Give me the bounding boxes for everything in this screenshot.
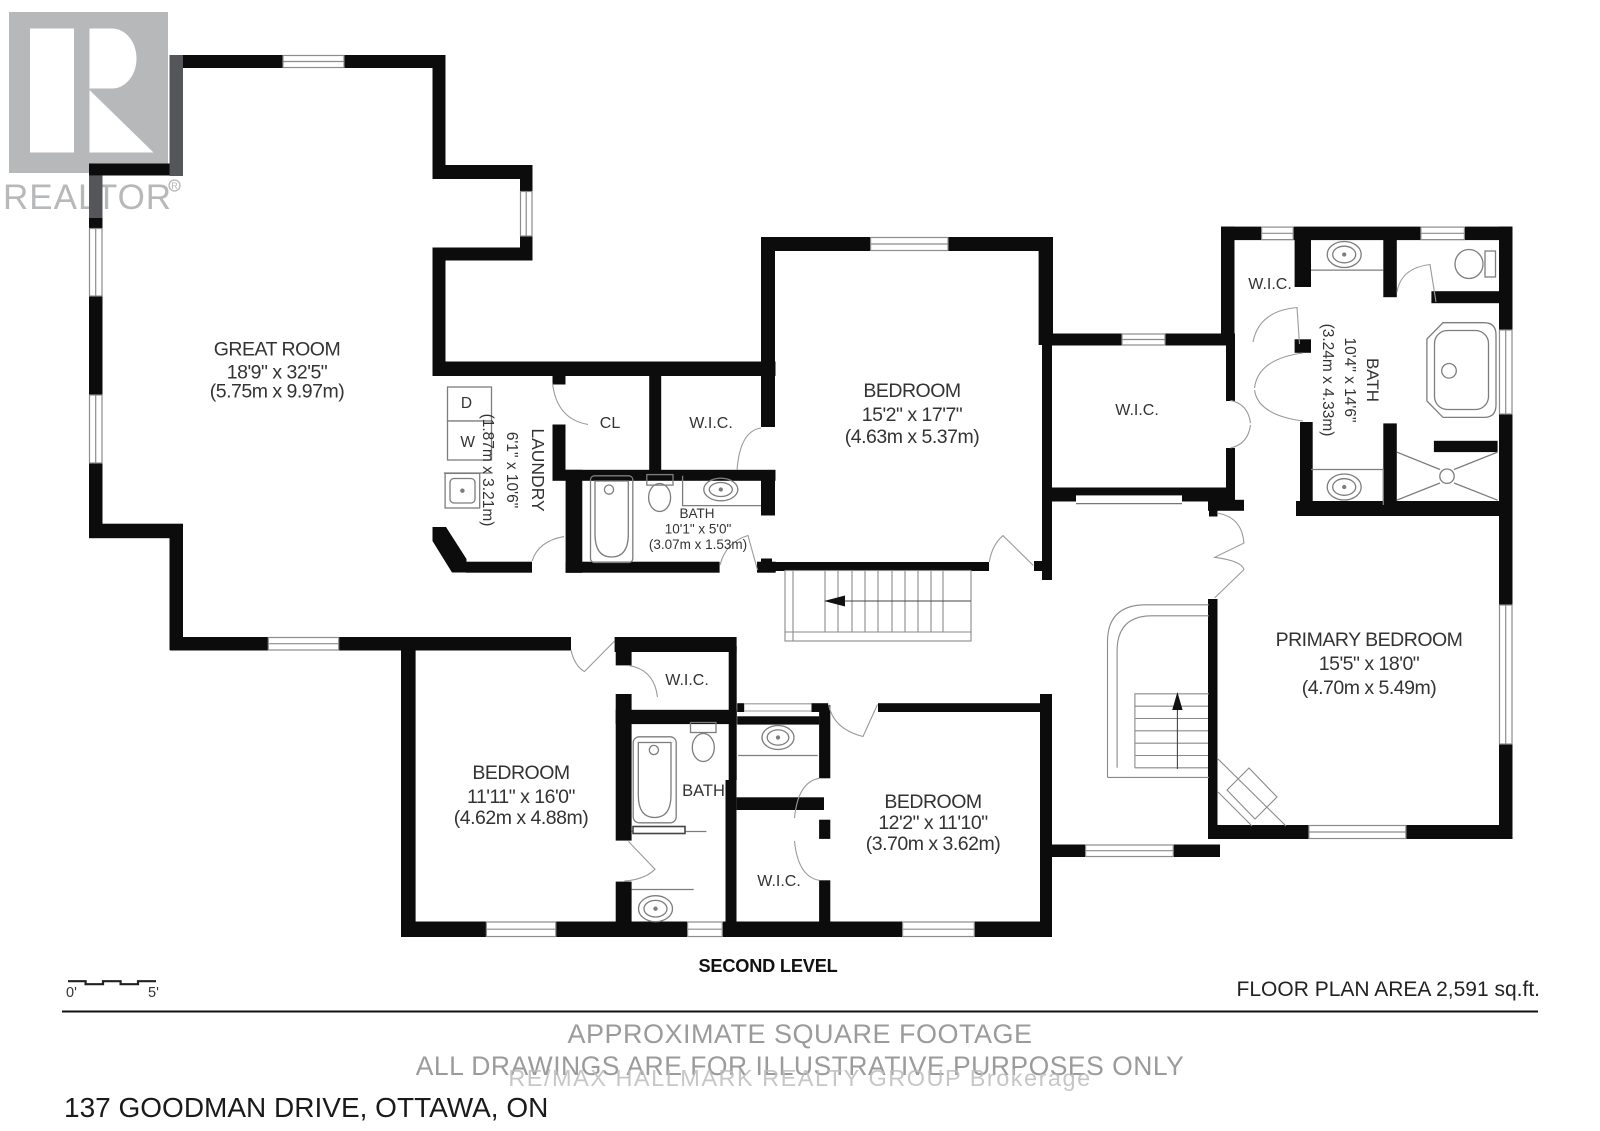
- svg-text:15'5" x 18'0": 15'5" x 18'0": [1319, 653, 1420, 675]
- svg-text:12'2" x 11'10": 12'2" x 11'10": [878, 812, 988, 834]
- svg-text:D: D: [461, 395, 472, 412]
- svg-text:0': 0': [66, 985, 77, 1001]
- svg-text:APPROXIMATE SQUARE FOOTAGE: APPROXIMATE SQUARE FOOTAGE: [567, 1019, 1032, 1049]
- svg-text:W: W: [460, 434, 475, 451]
- svg-text:CL: CL: [600, 415, 621, 432]
- svg-text:W.I.C.: W.I.C.: [665, 672, 709, 689]
- svg-text:REALTOR: REALTOR: [3, 178, 172, 217]
- svg-text:(3.24m x 4.33m): (3.24m x 4.33m): [1319, 324, 1336, 437]
- svg-text:W.I.C.: W.I.C.: [757, 873, 801, 890]
- svg-text:(5.75m x 9.97m): (5.75m x 9.97m): [210, 381, 344, 403]
- svg-text:BEDROOM: BEDROOM: [884, 791, 981, 813]
- svg-text:BATH: BATH: [1363, 358, 1382, 402]
- svg-text:(1.87m x 3.21m): (1.87m x 3.21m): [479, 414, 496, 527]
- svg-text:BEDROOM: BEDROOM: [863, 380, 960, 402]
- svg-text:10'1" x 5'0": 10'1" x 5'0": [665, 522, 732, 537]
- svg-text:(4.63m x 5.37m): (4.63m x 5.37m): [845, 426, 979, 448]
- svg-text:5': 5': [148, 985, 159, 1001]
- svg-text:10'4" x 14'6": 10'4" x 14'6": [1341, 337, 1358, 422]
- svg-text:R: R: [171, 181, 178, 191]
- svg-text:W.I.C.: W.I.C.: [1115, 402, 1159, 419]
- svg-text:W.I.C.: W.I.C.: [1248, 276, 1292, 293]
- svg-text:BEDROOM: BEDROOM: [472, 762, 569, 784]
- svg-text:PRIMARY BEDROOM: PRIMARY BEDROOM: [1276, 629, 1463, 651]
- svg-text:FLOOR PLAN AREA 2,591 sq.ft.: FLOOR PLAN AREA 2,591 sq.ft.: [1237, 978, 1540, 1001]
- svg-text:(3.07m x 1.53m): (3.07m x 1.53m): [649, 537, 747, 552]
- svg-text:6'1" x 10'6": 6'1" x 10'6": [503, 432, 520, 508]
- svg-text:BATH: BATH: [682, 782, 725, 800]
- svg-text:W.I.C.: W.I.C.: [689, 415, 733, 432]
- svg-text:137 GOODMAN DRIVE, OTTAWA, ON: 137 GOODMAN DRIVE, OTTAWA, ON: [64, 1092, 548, 1123]
- svg-text:11'11" x 16'0": 11'11" x 16'0": [467, 786, 575, 808]
- svg-text:(4.70m x 5.49m): (4.70m x 5.49m): [1302, 677, 1436, 699]
- svg-text:BATH: BATH: [679, 506, 714, 521]
- svg-text:(3.70m x 3.62m): (3.70m x 3.62m): [866, 833, 1000, 855]
- svg-text:15'2" x 17'7": 15'2" x 17'7": [862, 404, 963, 426]
- svg-text:SECOND LEVEL: SECOND LEVEL: [698, 956, 837, 976]
- svg-text:(4.62m x 4.88m): (4.62m x 4.88m): [454, 807, 588, 829]
- svg-text:GREAT ROOM: GREAT ROOM: [214, 339, 340, 361]
- svg-text:LAUNDRY: LAUNDRY: [528, 428, 548, 512]
- svg-text:RE/MAX HALLMARK REALTY GROUP B: RE/MAX HALLMARK REALTY GROUP Brokerage: [508, 1065, 1091, 1091]
